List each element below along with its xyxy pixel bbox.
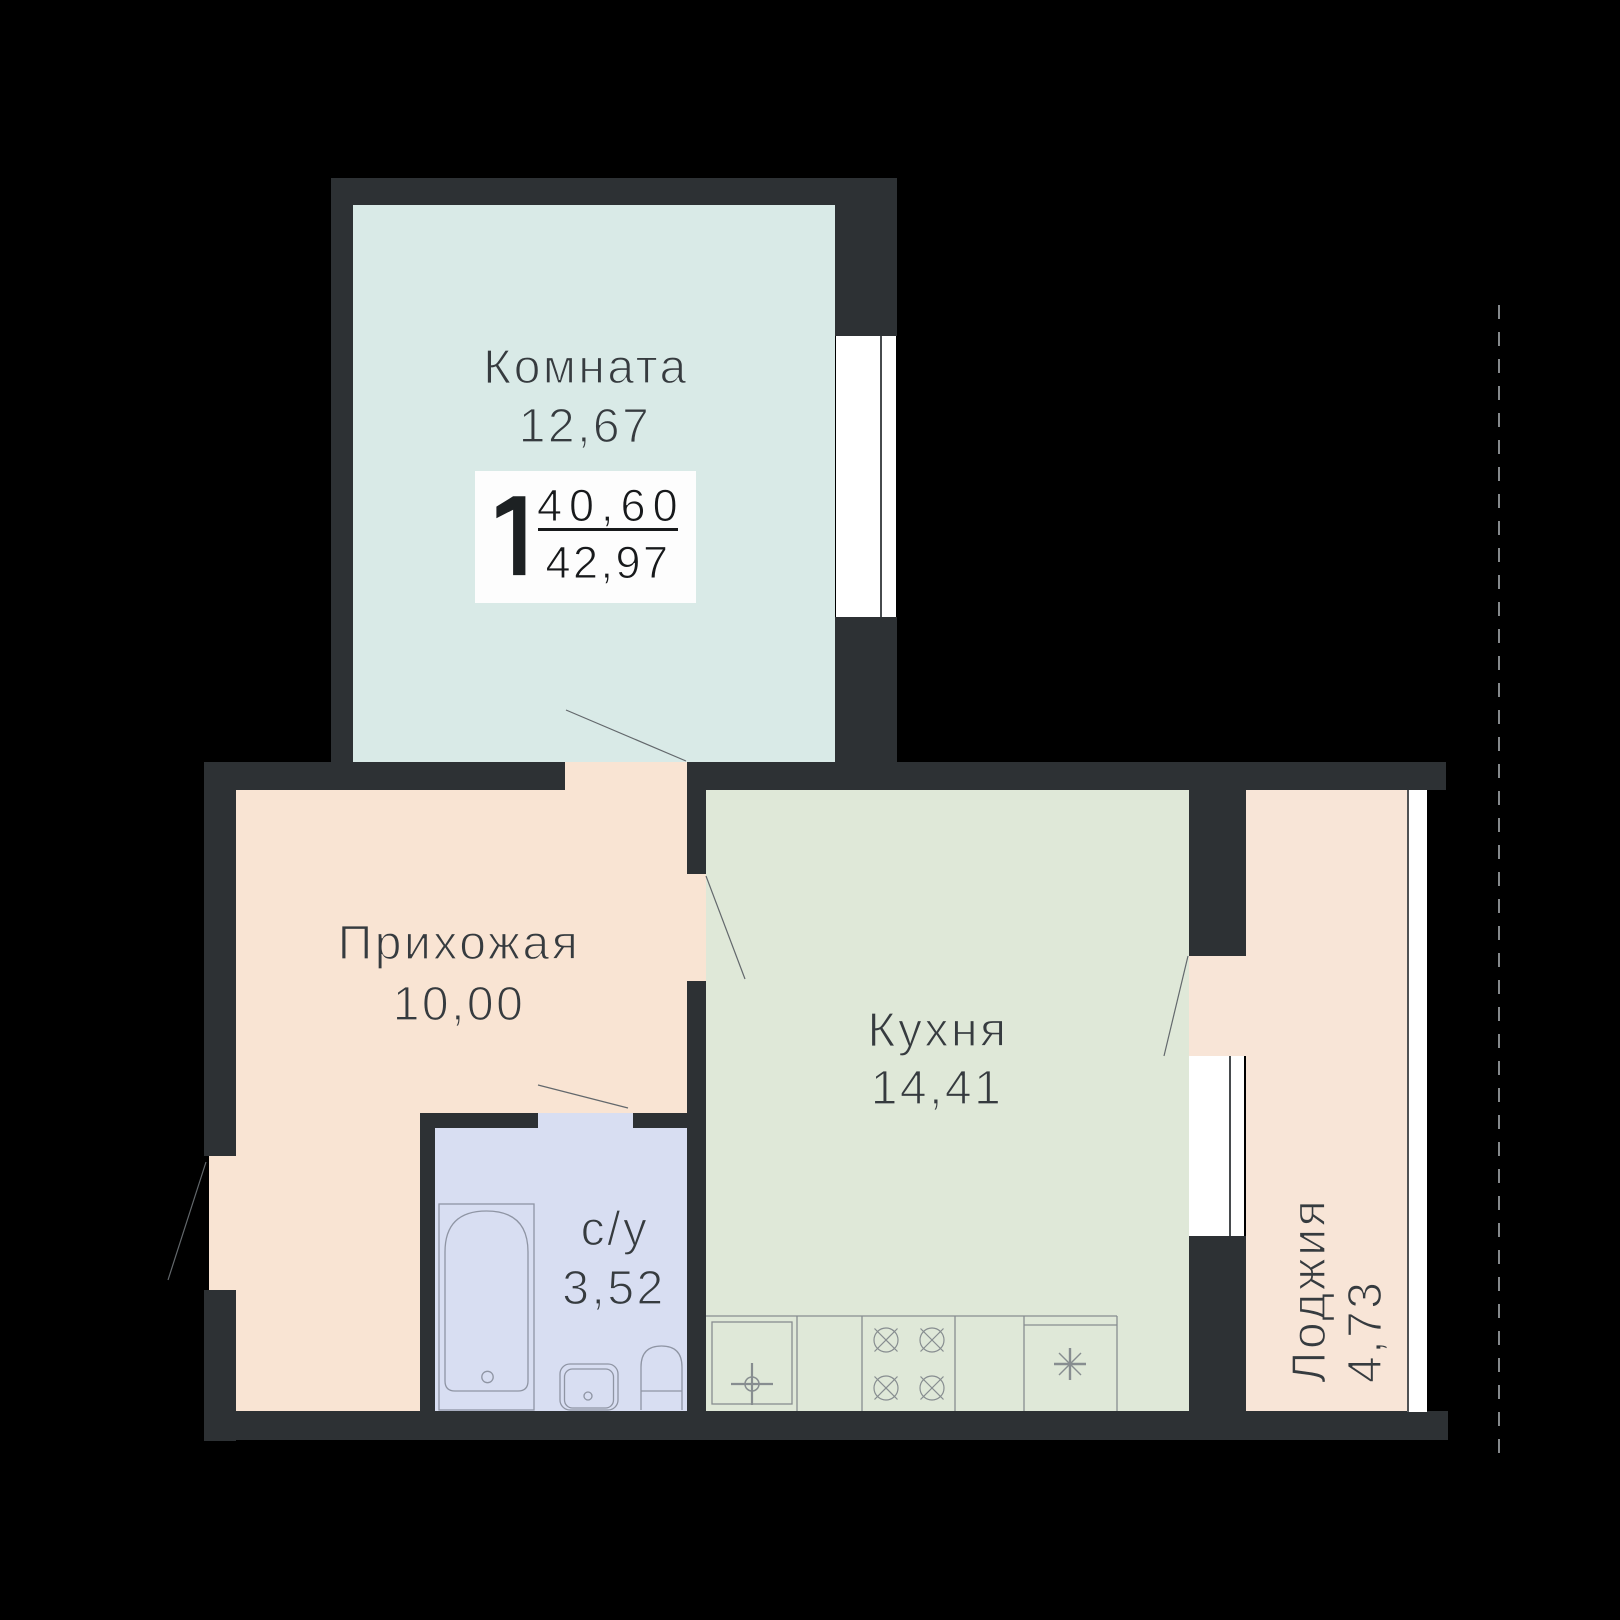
svg-text:Прихожая: Прихожая bbox=[338, 917, 580, 970]
svg-text:Комната: Комната bbox=[483, 341, 688, 394]
svg-text:Лоджия: Лоджия bbox=[1283, 1198, 1336, 1383]
svg-text:12,67: 12,67 bbox=[519, 400, 652, 453]
svg-text:3,52: 3,52 bbox=[562, 1262, 665, 1315]
svg-text:40,60: 40,60 bbox=[537, 480, 685, 531]
svg-text:Кухня: Кухня bbox=[868, 1004, 1009, 1057]
svg-text:10,00: 10,00 bbox=[393, 978, 526, 1031]
svg-text:14,41: 14,41 bbox=[871, 1062, 1004, 1115]
svg-text:4,73: 4,73 bbox=[1339, 1280, 1392, 1383]
svg-text:с/у: с/у bbox=[581, 1203, 650, 1256]
svg-text:42,97: 42,97 bbox=[545, 537, 670, 588]
